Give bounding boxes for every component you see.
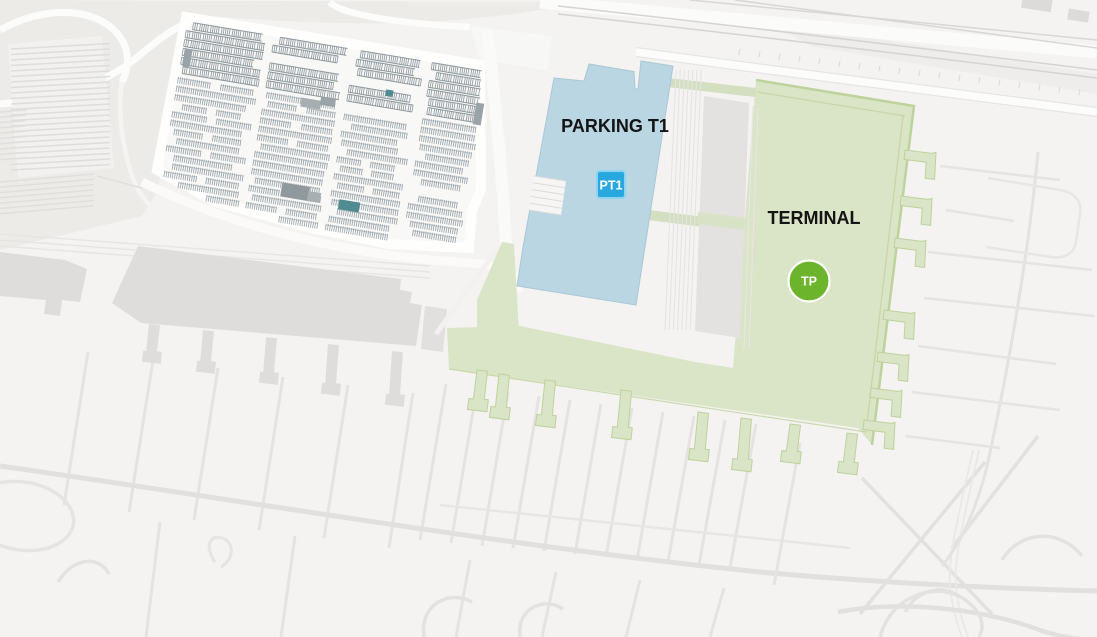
svg-text:PARKING T1: PARKING T1	[561, 116, 669, 136]
svg-text:TP: TP	[801, 275, 817, 289]
svg-text:TERMINAL: TERMINAL	[768, 208, 861, 228]
svg-text:PT1: PT1	[600, 179, 623, 193]
